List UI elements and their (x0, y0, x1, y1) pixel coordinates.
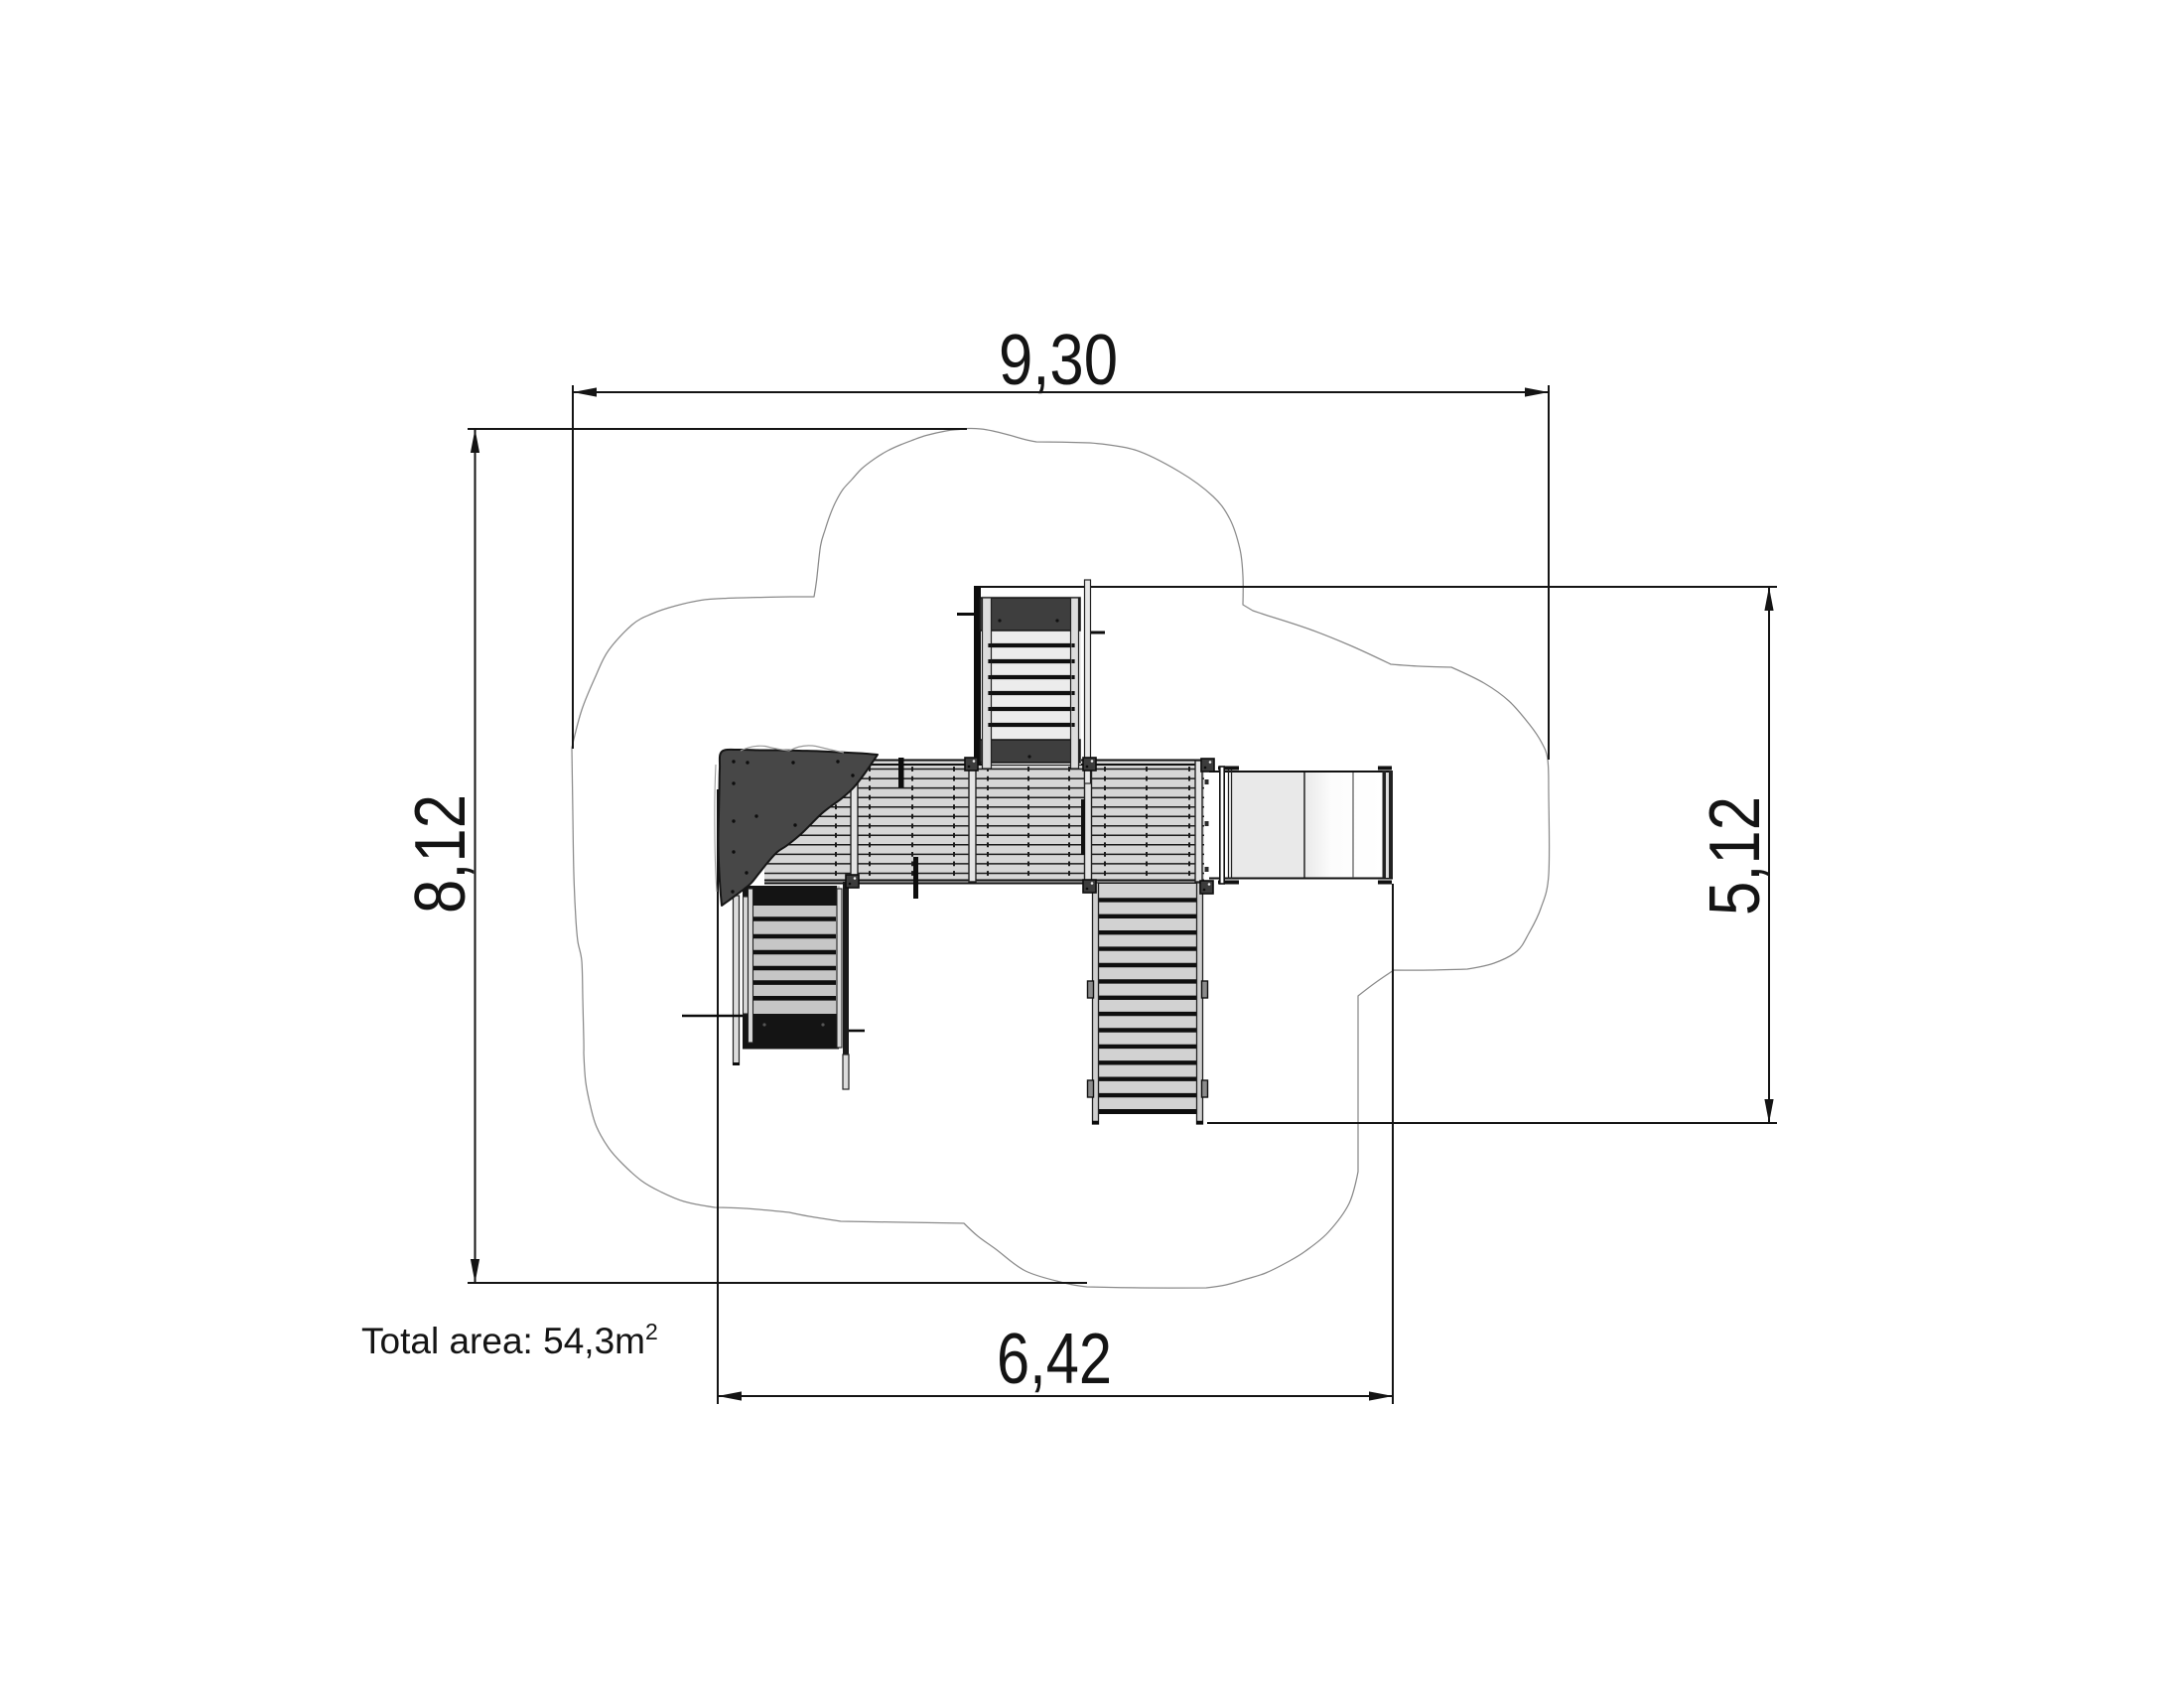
svg-text:5,12: 5,12 (1696, 796, 1775, 915)
svg-text:9,30: 9,30 (999, 321, 1118, 400)
svg-text:6,42: 6,42 (997, 1320, 1112, 1399)
svg-text:Total area: 54,3m: Total area: 54,3m (361, 1321, 645, 1361)
svg-text:8,12: 8,12 (401, 794, 480, 914)
svg-text:2: 2 (645, 1319, 658, 1344)
